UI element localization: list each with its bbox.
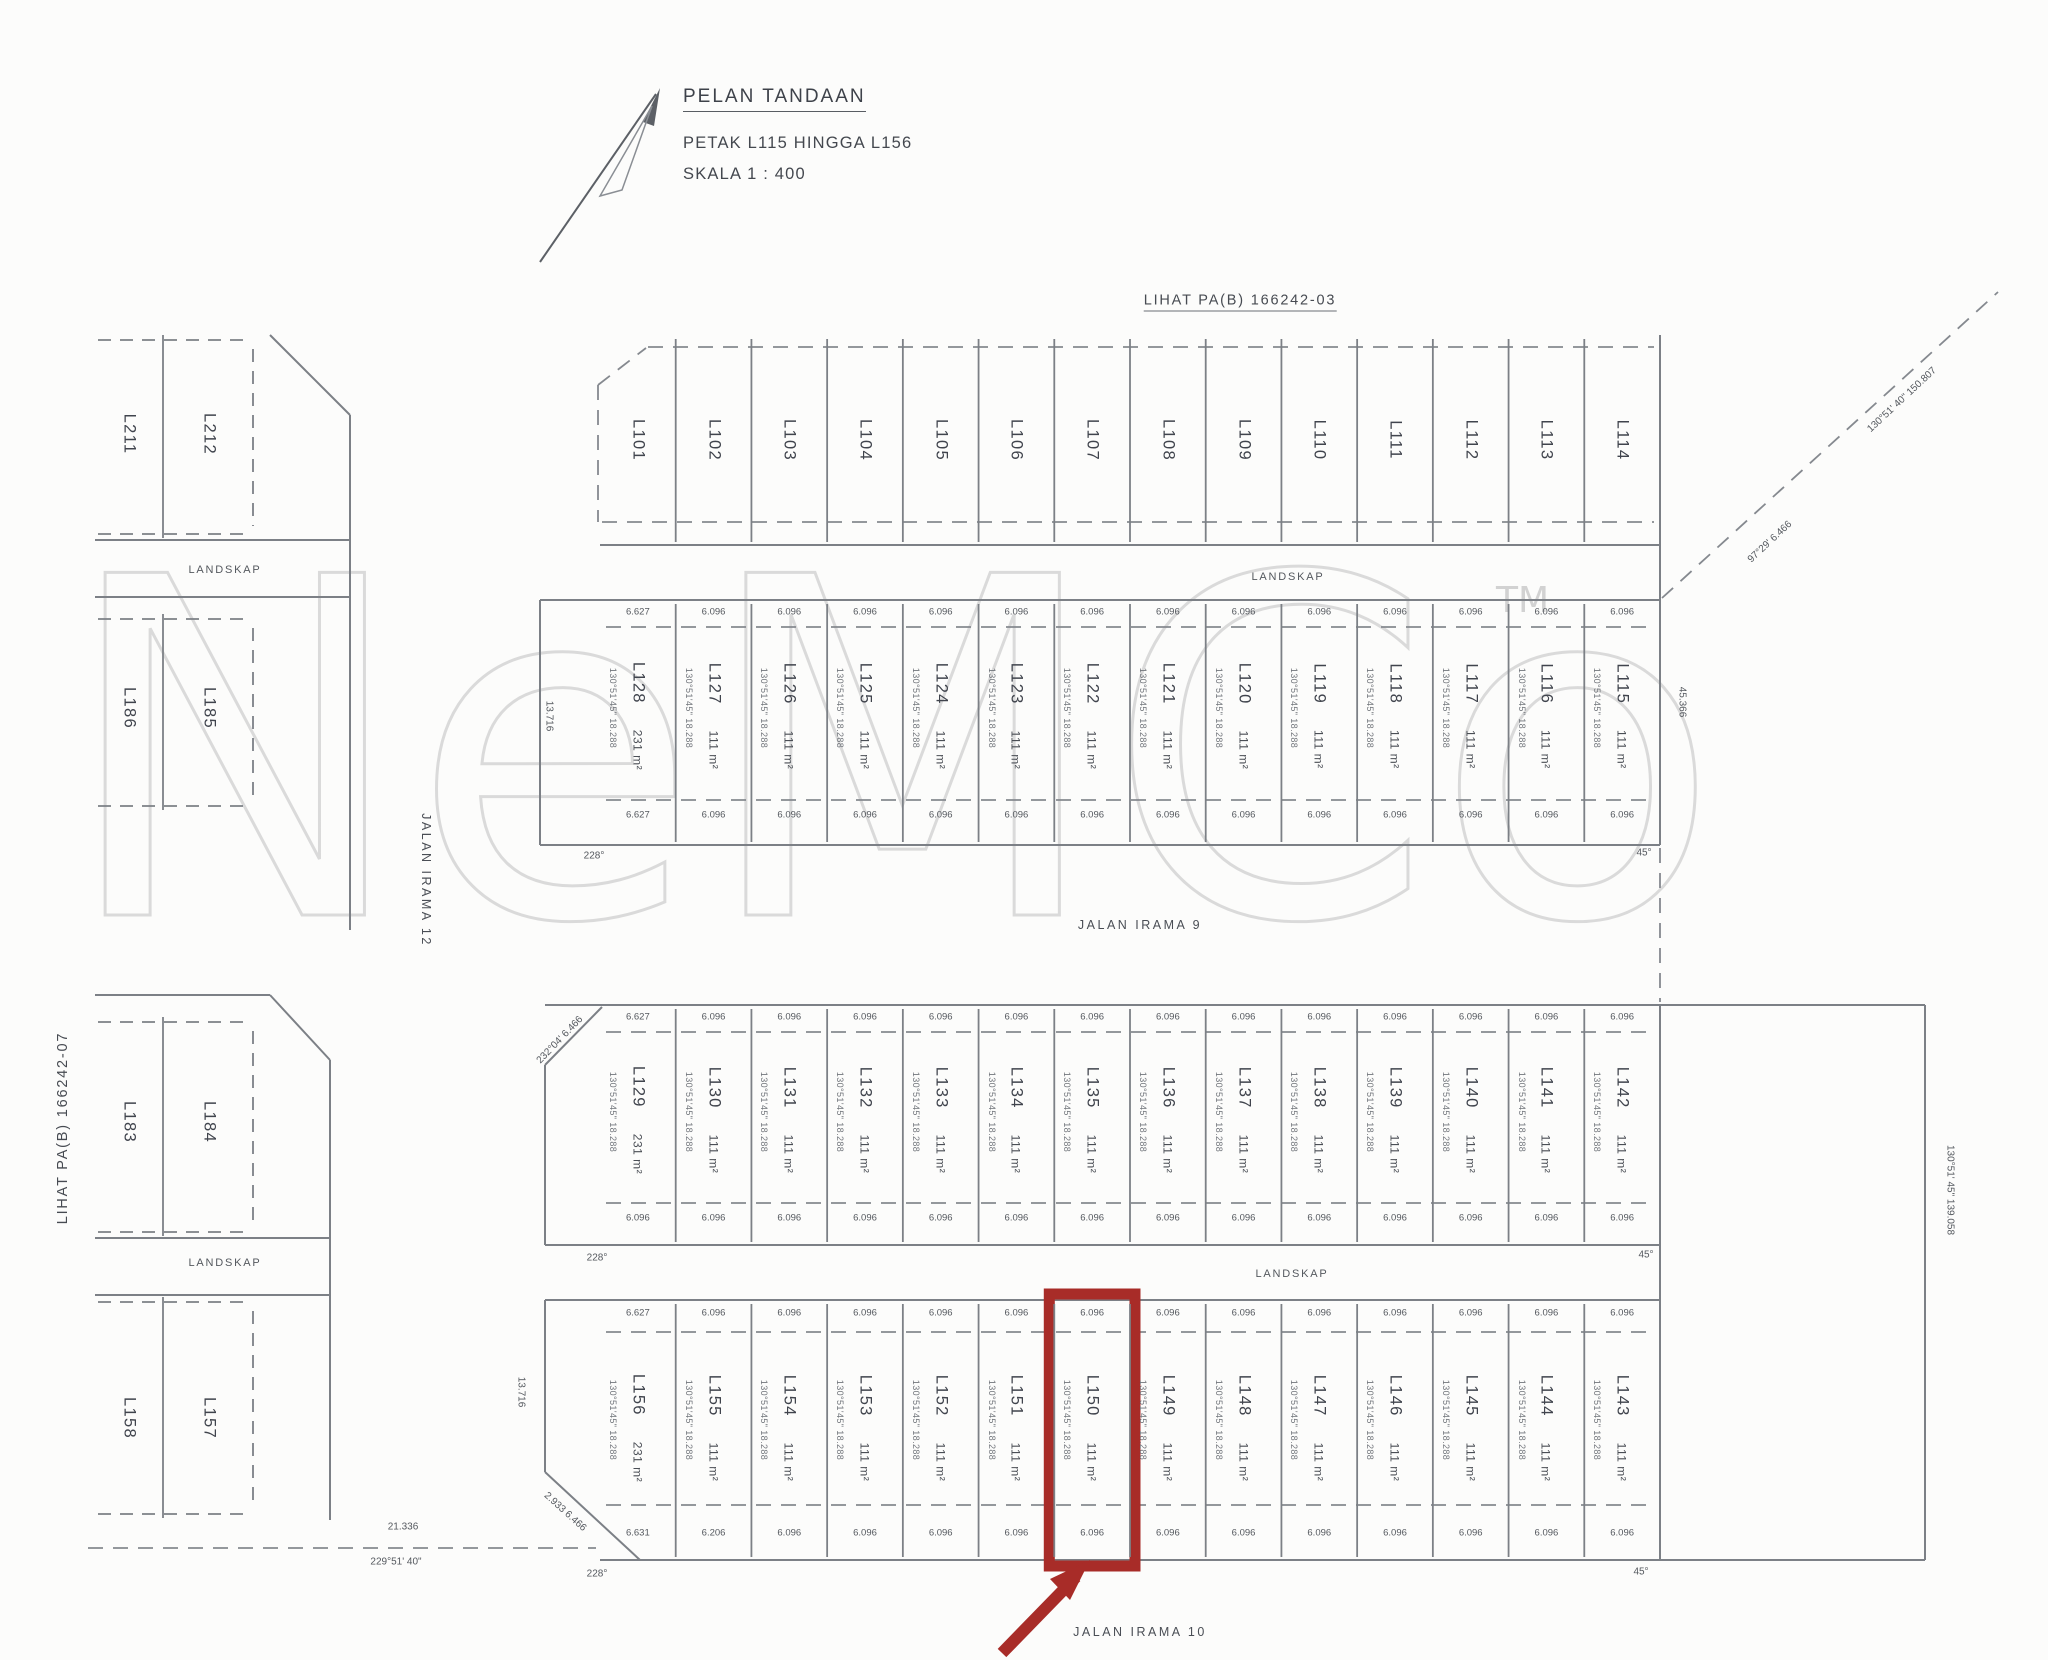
lot-top-dimension: 6.096: [777, 607, 801, 618]
dimension-annotation: 45°: [1633, 1567, 1648, 1578]
lot-label: L104: [856, 419, 875, 461]
lot-id: L120: [1234, 663, 1253, 705]
lot-id: L123: [1007, 663, 1026, 705]
lot-label: L114: [1613, 420, 1632, 461]
lot-bearing-text: 130°51'45" 18.288: [1138, 1072, 1148, 1152]
lot-id: L155: [704, 1375, 723, 1417]
road-label-jalan-irama-9: JALAN IRAMA 9: [1078, 918, 1202, 932]
lot-top-dimension: 6.096: [1610, 1012, 1634, 1023]
lot-top-dimension: 6.096: [1080, 1308, 1104, 1319]
lot-label: L113: [1537, 420, 1556, 461]
lot-top-dimension: 6.096: [1459, 1012, 1483, 1023]
dimension-annotation: 228°: [587, 1253, 608, 1264]
lot-label: L122111 m²: [1083, 663, 1102, 769]
lot-top-dimension: 6.096: [1459, 1308, 1483, 1319]
lot-id: L124: [931, 663, 950, 705]
lot-top-dimension: 6.096: [1307, 1012, 1331, 1023]
lot-bottom-dimension: 6.096: [1232, 1213, 1256, 1224]
lot-top-dimension: 6.096: [1459, 607, 1483, 618]
lot-bottom-dimension: 6.096: [1535, 810, 1559, 821]
lot-label: L134111 m²: [1007, 1067, 1026, 1173]
lot-top-dimension: 6.096: [1156, 607, 1180, 618]
lot-label: L125111 m²: [856, 663, 875, 769]
lot-label: L156231 m²: [628, 1374, 647, 1482]
lot-area: 111 m²: [706, 1135, 720, 1174]
lot-bottom-dimension: 6.096: [853, 1528, 877, 1539]
lot-bearing-text: 130°51'45" 18.288: [684, 1072, 694, 1152]
lot-bearing-text: 130°51'45" 18.288: [1441, 668, 1451, 748]
lot-id: L128: [628, 662, 647, 704]
lot-top-dimension: 6.627: [626, 607, 650, 618]
lot-bearing-text: 130°51'45" 18.288: [911, 1380, 921, 1460]
lot-area: 111 m²: [933, 1135, 947, 1174]
lot-area: 111 m²: [858, 1135, 872, 1174]
lot-top-dimension: 6.096: [1383, 1012, 1407, 1023]
lot-label: L212: [200, 413, 219, 455]
lot-label: L110: [1310, 420, 1329, 461]
lot-label: L154111 m²: [780, 1375, 799, 1481]
lot-bottom-dimension: 6.096: [1535, 1213, 1559, 1224]
lot-area: 111 m²: [1463, 730, 1477, 769]
lot-bottom-dimension: 6.096: [1156, 810, 1180, 821]
lot-top-dimension: 6.096: [1156, 1308, 1180, 1319]
dimension-annotation: 45.366: [1677, 687, 1688, 718]
lot-bearing-text: 130°51'45" 18.288: [608, 1380, 618, 1460]
lot-id: L139: [1386, 1067, 1405, 1109]
landskap-label-left-top: LANDSKAP: [188, 564, 261, 576]
lot-bottom-dimension: 6.096: [853, 1213, 877, 1224]
lot-bearing-text: 130°51'45" 18.288: [1592, 1072, 1602, 1152]
lot-top-dimension: 6.096: [702, 1012, 726, 1023]
lot-label: L135111 m²: [1083, 1067, 1102, 1173]
lot-bottom-dimension: 6.096: [1080, 1213, 1104, 1224]
lot-top-dimension: 6.096: [1307, 607, 1331, 618]
lot-label: L138111 m²: [1310, 1067, 1329, 1173]
lot-bearing-text: 130°51'45" 18.288: [1592, 1380, 1602, 1460]
lot-area: 111 m²: [933, 731, 947, 770]
lot-id: L137: [1234, 1067, 1253, 1109]
landskap-label-mid-bottom: LANDSKAP: [1255, 1268, 1328, 1280]
lot-bottom-dimension: 6.096: [777, 1213, 801, 1224]
lot-bottom-dimension: 6.096: [1610, 1528, 1634, 1539]
lot-area: 111 m²: [1009, 1443, 1023, 1482]
lot-id: L101: [628, 419, 647, 461]
dimension-annotation: 45°: [1638, 1250, 1653, 1261]
lot-bearing-text: 130°51'45" 18.288: [759, 668, 769, 748]
lot-bearing-text: 130°51'45" 18.288: [1289, 1072, 1299, 1152]
lot-label: L146111 m²: [1386, 1375, 1405, 1481]
lot-id: L103: [780, 419, 799, 461]
lot-bearing-text: 130°51'45" 18.288: [1214, 1380, 1224, 1460]
dimension-annotation: 229°51' 40": [370, 1557, 421, 1568]
lot-bottom-dimension: 6.096: [929, 810, 953, 821]
lot-top-dimension: 6.096: [1232, 1012, 1256, 1023]
reference-note-top: LIHAT PA(B) 166242-03: [1144, 293, 1337, 312]
lot-bearing-text: 130°51'45" 18.288: [759, 1380, 769, 1460]
lot-label: L106: [1007, 419, 1026, 461]
lot-id: L102: [704, 419, 723, 461]
lot-id: L105: [931, 419, 950, 461]
dimension-annotation: 13.716: [516, 1377, 527, 1408]
lot-area: 111 m²: [1539, 1443, 1553, 1482]
lot-bottom-dimension: 6.096: [1156, 1528, 1180, 1539]
lot-bottom-dimension: 6.096: [1459, 1213, 1483, 1224]
lot-top-dimension: 6.096: [929, 607, 953, 618]
lot-bottom-dimension: 6.096: [853, 810, 877, 821]
lot-label: L185: [200, 687, 219, 729]
lot-id: L154: [780, 1375, 799, 1417]
lot-area: 111 m²: [1312, 730, 1326, 769]
lot-top-dimension: 6.096: [1535, 1012, 1559, 1023]
lot-label: L186: [120, 687, 139, 729]
lot-bearing-text: 130°51'45" 18.288: [987, 1072, 997, 1152]
plan-title: PELAN TANDAAN: [683, 86, 866, 112]
lot-bottom-dimension: 6.096: [1383, 1213, 1407, 1224]
lot-bottom-dimension: 6.096: [1383, 810, 1407, 821]
lot-bearing-text: 130°51'45" 18.288: [835, 1072, 845, 1152]
lot-bottom-dimension: 6.096: [1307, 810, 1331, 821]
lot-area: 111 m²: [1388, 730, 1402, 769]
lot-id: L131: [780, 1067, 799, 1109]
lot-top-dimension: 6.096: [1080, 1012, 1104, 1023]
lot-area: 111 m²: [1236, 1443, 1250, 1482]
lot-bottom-dimension: 6.096: [1307, 1213, 1331, 1224]
lot-label: L136111 m²: [1158, 1067, 1177, 1173]
lot-label: L105: [931, 419, 950, 461]
dimension-annotation: 228°: [584, 851, 605, 862]
plan-scale: SKALA 1 : 400: [683, 165, 806, 184]
lot-top-dimension: 6.096: [1005, 1308, 1029, 1319]
lot-top-dimension: 6.096: [1383, 1308, 1407, 1319]
lot-area: 111 m²: [933, 1443, 947, 1482]
lot-area: 231 m²: [630, 1442, 644, 1482]
lot-top-dimension: 6.627: [626, 1012, 650, 1023]
lot-label: L151111 m²: [1007, 1375, 1026, 1481]
lot-bottom-dimension: 6.096: [1459, 1528, 1483, 1539]
lot-label: L155111 m²: [704, 1375, 723, 1481]
plan-subtitle: PETAK L115 HINGGA L156: [683, 134, 912, 153]
lot-id: L147: [1310, 1375, 1329, 1417]
lot-label: L141111 m²: [1537, 1067, 1556, 1173]
lot-top-dimension: 6.096: [929, 1308, 953, 1319]
lot-bearing-text: 130°51'45" 18.288: [987, 1380, 997, 1460]
lot-id: L111: [1386, 420, 1405, 459]
lot-label: L139111 m²: [1386, 1067, 1405, 1173]
lot-label: L149111 m²: [1158, 1375, 1177, 1481]
lot-area: 111 m²: [782, 731, 796, 770]
lot-id: L126: [780, 663, 799, 705]
lot-top-dimension: 6.096: [1156, 1012, 1180, 1023]
lot-area: 231 m²: [630, 1134, 644, 1174]
lot-area: 111 m²: [782, 1443, 796, 1482]
lot-label: L133111 m²: [931, 1067, 950, 1173]
lot-bearing-text: 130°51'45" 18.288: [1214, 668, 1224, 748]
lot-id: L125: [856, 663, 875, 705]
lot-id: L138: [1310, 1067, 1329, 1109]
lot-area: 111 m²: [1085, 1443, 1099, 1482]
lot-bottom-dimension: 6.096: [1610, 810, 1634, 821]
lot-bottom-dimension: 6.096: [1459, 810, 1483, 821]
lot-label: L153111 m²: [856, 1375, 875, 1481]
lot-top-dimension: 6.096: [1005, 1012, 1029, 1023]
lot-label: L140111 m²: [1461, 1067, 1480, 1173]
lot-bottom-dimension: 6.627: [626, 810, 650, 821]
lot-area: 111 m²: [858, 1443, 872, 1482]
lot-bearing-text: 130°51'45" 18.288: [1365, 1072, 1375, 1152]
lot-bottom-dimension: 6.206: [702, 1528, 726, 1539]
lot-label: L121111 m²: [1158, 663, 1177, 769]
lot-bottom-dimension: 6.096: [1080, 1528, 1104, 1539]
lot-label: L127111 m²: [704, 663, 723, 769]
lot-id: L145: [1461, 1375, 1480, 1417]
lot-id: L112: [1461, 420, 1480, 461]
lot-id: L153: [856, 1375, 875, 1417]
lot-id: L104: [856, 419, 875, 461]
lot-bottom-dimension: 6.096: [1005, 1213, 1029, 1224]
lot-label: L157: [200, 1397, 219, 1439]
lot-bottom-dimension: 6.096: [929, 1213, 953, 1224]
lot-id: L156: [628, 1374, 647, 1416]
lot-area: 111 m²: [1085, 731, 1099, 770]
lot-bottom-dimension: 6.096: [1232, 810, 1256, 821]
lot-area: 111 m²: [1009, 731, 1023, 770]
lot-label: L137111 m²: [1234, 1067, 1253, 1173]
lot-label: L130111 m²: [704, 1067, 723, 1173]
lot-id: L118: [1386, 663, 1405, 704]
lot-bearing-text: 130°51'45" 18.288: [759, 1072, 769, 1152]
lot-bottom-dimension: 6.096: [1005, 1528, 1029, 1539]
lot-label: L128231 m²: [628, 662, 647, 770]
lot-id: L148: [1234, 1375, 1253, 1417]
lot-top-dimension: 6.096: [853, 1308, 877, 1319]
lot-id: L143: [1613, 1375, 1632, 1417]
lot-bearing-text: 130°51'45" 18.288: [835, 668, 845, 748]
lot-top-dimension: 6.096: [853, 1012, 877, 1023]
dimension-annotation: 21.336: [388, 1522, 419, 1533]
lot-bearing-text: 130°51'45" 18.288: [1517, 668, 1527, 748]
lot-label: L129231 m²: [628, 1066, 647, 1174]
lot-bearing-text: 130°51'45" 18.288: [1365, 1380, 1375, 1460]
lot-bottom-dimension: 6.096: [929, 1528, 953, 1539]
lot-id: L106: [1007, 419, 1026, 461]
lot-id: L144: [1537, 1375, 1556, 1417]
lot-area: 111 m²: [1312, 1443, 1326, 1482]
lot-top-dimension: 6.096: [1232, 1308, 1256, 1319]
lot-area: 111 m²: [1085, 1135, 1099, 1174]
lot-label: L123111 m²: [1007, 663, 1026, 769]
landskap-label-left-bottom: LANDSKAP: [188, 1257, 261, 1269]
lot-bearing-text: 130°51'45" 18.288: [1138, 1380, 1148, 1460]
lot-id: L110: [1310, 420, 1329, 461]
lot-label: L132111 m²: [856, 1067, 875, 1173]
lot-label: L101: [628, 419, 647, 461]
dimension-annotation: 228°: [587, 1569, 608, 1580]
lot-label: L184: [200, 1101, 219, 1143]
lot-area: 111 m²: [782, 1135, 796, 1174]
lot-bearing-text: 130°51'45" 18.288: [1138, 668, 1148, 748]
landskap-label-right-top: LANDSKAP: [1251, 571, 1324, 583]
lot-id: L150: [1083, 1375, 1102, 1417]
lot-label: L150111 m²: [1083, 1375, 1102, 1481]
lot-id: L129: [628, 1066, 647, 1108]
lot-label: L183: [120, 1101, 139, 1143]
lot-bottom-dimension: 6.096: [702, 810, 726, 821]
lot-id: L116: [1537, 663, 1556, 704]
lot-bottom-dimension: 6.096: [777, 810, 801, 821]
lot-bottom-dimension: 6.096: [1232, 1528, 1256, 1539]
lot-label: L126111 m²: [780, 663, 799, 769]
lot-area: 111 m²: [1009, 1135, 1023, 1174]
lot-label: L120111 m²: [1234, 663, 1253, 769]
lot-bottom-dimension: 6.096: [1156, 1213, 1180, 1224]
north-arrow-icon: [540, 88, 660, 262]
lot-id: L132: [856, 1067, 875, 1109]
lot-label: L118111 m²: [1386, 663, 1405, 768]
lot-bottom-dimension: 6.096: [777, 1528, 801, 1539]
lot-id: L114: [1613, 420, 1632, 461]
lot-bottom-dimension: 6.096: [1005, 810, 1029, 821]
lot-area: 111 m²: [1388, 1135, 1402, 1174]
lot-label: L145111 m²: [1461, 1375, 1480, 1481]
lot-id: L107: [1083, 419, 1102, 461]
lot-bearing-text: 130°51'45" 18.288: [608, 1072, 618, 1152]
lot-bottom-dimension: 6.096: [1080, 810, 1104, 821]
lot-id: L151: [1007, 1375, 1026, 1417]
lot-id: L117: [1461, 663, 1480, 704]
lot-bearing-text: 130°51'45" 18.288: [1062, 668, 1072, 748]
lot-label: L112: [1461, 420, 1480, 461]
lot-bearing-text: 130°51'45" 18.288: [1517, 1072, 1527, 1152]
lot-area: 111 m²: [1236, 1135, 1250, 1174]
lot-label: L102: [704, 419, 723, 461]
lot-id: L136: [1158, 1067, 1177, 1109]
lot-id: L121: [1158, 663, 1177, 705]
lot-top-dimension: 6.096: [702, 1308, 726, 1319]
lot-bearing-text: 130°51'45" 18.288: [1365, 668, 1375, 748]
lot-bottom-dimension: 6.096: [1610, 1213, 1634, 1224]
lot-bottom-dimension: 6.096: [702, 1213, 726, 1224]
lot-top-dimension: 6.096: [777, 1012, 801, 1023]
lot-bearing-text: 130°51'45" 18.288: [987, 668, 997, 748]
lot-label: L211: [120, 414, 139, 455]
lot-label: L131111 m²: [780, 1067, 799, 1173]
lot-bearing-text: 130°51'45" 18.288: [1062, 1072, 1072, 1152]
lot-label: L108: [1158, 419, 1177, 461]
lot-id: L122: [1083, 663, 1102, 705]
lot-bearing-text: 130°51'45" 18.288: [911, 668, 921, 748]
lot-area: 111 m²: [1160, 1443, 1174, 1482]
survey-plan-canvas: NeMCo TM: [0, 0, 2048, 1660]
lot-area: 111 m²: [1160, 731, 1174, 770]
lot-label: L115111 m²: [1613, 663, 1632, 768]
lot-bearing-text: 130°51'45" 18.288: [1289, 668, 1299, 748]
lot-label: L116111 m²: [1537, 663, 1556, 768]
lot-area: 111 m²: [1539, 730, 1553, 769]
lot-top-dimension: 6.096: [1080, 607, 1104, 618]
lot-top-dimension: 6.096: [1383, 607, 1407, 618]
lot-label: L109: [1234, 419, 1253, 461]
lot-top-dimension: 6.096: [1610, 1308, 1634, 1319]
lot-area: 111 m²: [1615, 730, 1629, 769]
lot-label: L147111 m²: [1310, 1375, 1329, 1481]
lot-area: 111 m²: [706, 1443, 720, 1482]
lot-area: 111 m²: [1463, 1135, 1477, 1174]
lot-id: L135: [1083, 1067, 1102, 1109]
lot-label: L148111 m²: [1234, 1375, 1253, 1481]
lot-top-dimension: 6.096: [1610, 607, 1634, 618]
lot-bearing-text: 130°51'45" 18.288: [1441, 1072, 1451, 1152]
lot-id: L109: [1234, 419, 1253, 461]
dimension-annotation: 13.716: [544, 701, 555, 732]
lot-top-dimension: 6.096: [1535, 607, 1559, 618]
lot-id: L142: [1613, 1067, 1632, 1109]
lot-top-dimension: 6.096: [1307, 1308, 1331, 1319]
lot-id: L149: [1158, 1375, 1177, 1417]
lot-area: 111 m²: [1236, 731, 1250, 770]
lot-label: L143111 m²: [1613, 1375, 1632, 1481]
lot-area: 111 m²: [1615, 1135, 1629, 1174]
lot-id: L130: [704, 1067, 723, 1109]
lot-bearing-text: 130°51'45" 18.288: [835, 1380, 845, 1460]
lot-top-dimension: 6.096: [777, 1308, 801, 1319]
lot-bottom-dimension: 6.096: [1383, 1528, 1407, 1539]
lot-label: L144111 m²: [1537, 1375, 1556, 1481]
lot-label: L152111 m²: [931, 1375, 950, 1481]
lot-id: L140: [1461, 1067, 1480, 1109]
dimension-annotation: 45°: [1636, 848, 1651, 859]
lot-bearing-text: 130°51'45" 18.288: [684, 668, 694, 748]
lot-bearing-text: 130°51'45" 18.288: [1441, 1380, 1451, 1460]
road-label-jalan-irama-12: JALAN IRAMA 12: [419, 813, 433, 947]
lot-label: L142111 m²: [1613, 1067, 1632, 1173]
lot-area: 231 m²: [630, 730, 644, 770]
lot-bottom-dimension: 6.631: [626, 1528, 650, 1539]
lot-id: L146: [1386, 1375, 1405, 1417]
lot-bearing-text: 130°51'45" 18.288: [608, 668, 618, 748]
lot-area: 111 m²: [1312, 1135, 1326, 1174]
lot-bearing-text: 130°51'45" 18.288: [684, 1380, 694, 1460]
lot-id: L152: [931, 1375, 950, 1417]
lot-id: L133: [931, 1067, 950, 1109]
dimension-annotation: 130°51' 45" 139.058: [1945, 1145, 1956, 1235]
lot-area: 111 m²: [1539, 1135, 1553, 1174]
lot-label: L103: [780, 419, 799, 461]
lot-bearing-text: 130°51'45" 18.288: [1592, 668, 1602, 748]
road-label-jalan-irama-10: JALAN IRAMA 10: [1073, 1625, 1207, 1639]
lot-top-dimension: 6.096: [1005, 607, 1029, 618]
lot-area: 111 m²: [1160, 1135, 1174, 1174]
lot-id: L115: [1613, 663, 1632, 704]
lot-label: L117111 m²: [1461, 663, 1480, 768]
lot-area: 111 m²: [1615, 1443, 1629, 1482]
lot-bearing-text: 130°51'45" 18.288: [1517, 1380, 1527, 1460]
lot-bottom-dimension: 6.096: [1307, 1528, 1331, 1539]
lot-label: L107: [1083, 419, 1102, 461]
lot-bearing-text: 130°51'45" 18.288: [1062, 1380, 1072, 1460]
reference-note-left: LIHAT PA(B) 166242-07: [55, 1032, 73, 1225]
lot-label: L119111 m²: [1310, 663, 1329, 768]
lot-bearing-text: 130°51'45" 18.288: [1214, 1072, 1224, 1152]
lot-area: 111 m²: [858, 731, 872, 770]
lot-label: L158: [120, 1397, 139, 1439]
lot-area: 111 m²: [706, 731, 720, 770]
lot-bearing-text: 130°51'45" 18.288: [911, 1072, 921, 1152]
lot-id: L108: [1158, 419, 1177, 461]
lot-id: L141: [1537, 1067, 1556, 1109]
lot-bottom-dimension: 6.096: [626, 1213, 650, 1224]
lot-top-dimension: 6.096: [1535, 1308, 1559, 1319]
lot-id: L134: [1007, 1067, 1026, 1109]
